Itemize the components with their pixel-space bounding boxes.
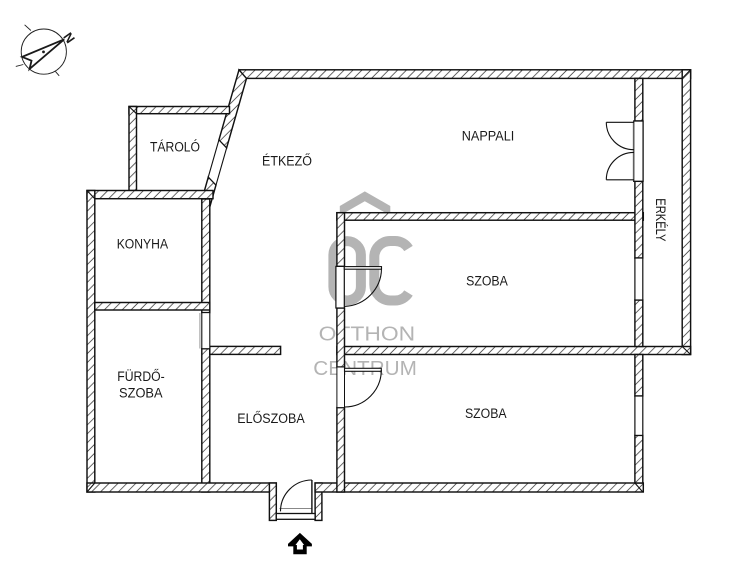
svg-text:SZOBA: SZOBA <box>465 405 507 421</box>
svg-text:ERKÉLY: ERKÉLY <box>653 198 669 242</box>
svg-text:FÜRDŐ-: FÜRDŐ- <box>117 367 165 384</box>
svg-text:SZOBA: SZOBA <box>466 273 508 289</box>
svg-text:TÁROLÓ: TÁROLÓ <box>150 139 200 155</box>
svg-text:SZOBA: SZOBA <box>119 385 163 401</box>
svg-text:ELŐSZOBA: ELŐSZOBA <box>237 410 305 426</box>
svg-text:OTTHON: OTTHON <box>319 324 416 346</box>
svg-text:KONYHA: KONYHA <box>117 235 169 251</box>
svg-text:ÉTKEZŐ: ÉTKEZŐ <box>262 152 312 168</box>
svg-text:NAPPALI: NAPPALI <box>462 128 515 144</box>
